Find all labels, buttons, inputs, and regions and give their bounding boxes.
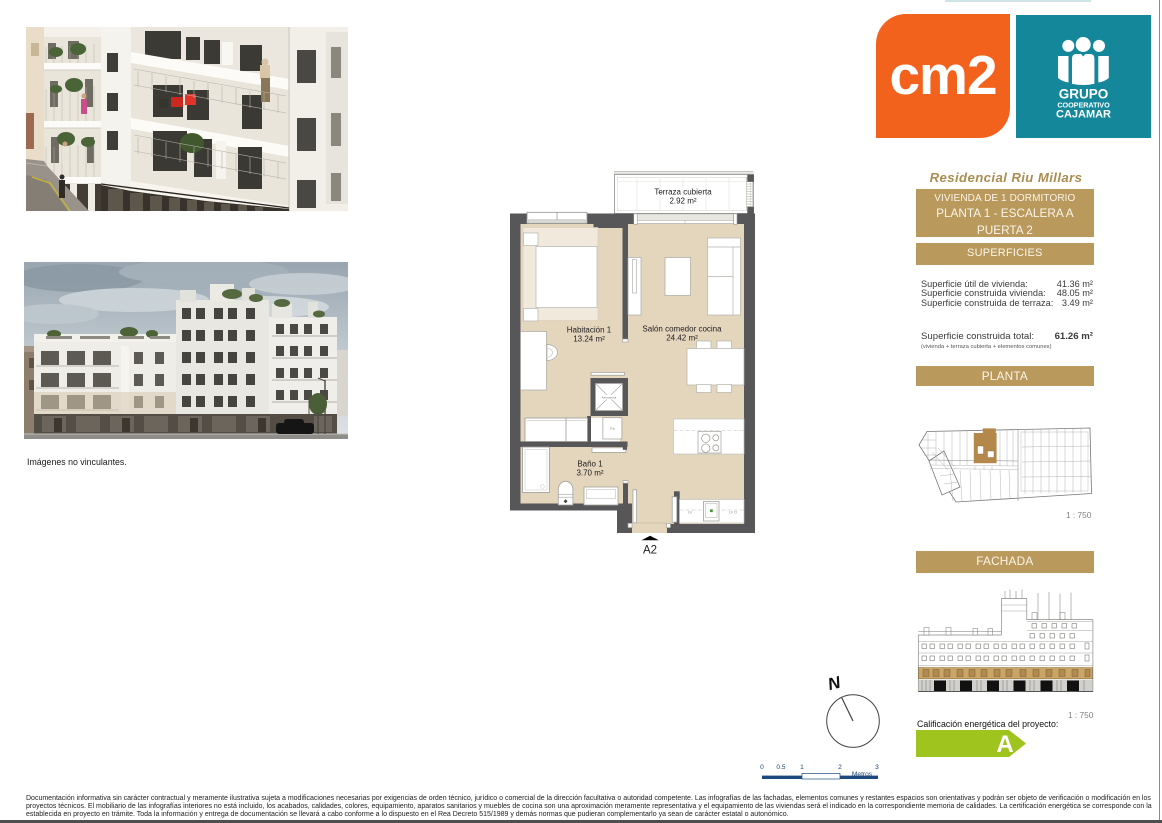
svg-text:Aerotermia: Aerotermia <box>602 395 617 399</box>
svg-text:0.5: 0.5 <box>776 764 785 771</box>
svg-text:24.42 m²: 24.42 m² <box>666 334 698 343</box>
svg-text:3.70 m²: 3.70 m² <box>576 469 603 478</box>
svg-text:2: 2 <box>838 764 842 771</box>
svg-text:2.92 m²: 2.92 m² <box>669 197 696 206</box>
svg-text:N: N <box>826 673 843 695</box>
svg-text:LV: LV <box>688 511 693 515</box>
svg-text:Habitación 1: Habitación 1 <box>567 325 612 334</box>
svg-text:Salón comedor cocina: Salón comedor cocina <box>642 324 722 333</box>
svg-text:0: 0 <box>760 764 764 771</box>
svg-text:13.24 m²: 13.24 m² <box>573 335 605 344</box>
svg-text:P.b: P.b <box>610 427 615 431</box>
svg-text:Baño 1: Baño 1 <box>577 459 603 468</box>
svg-text:1: 1 <box>800 764 804 771</box>
svg-text:LV O: LV O <box>729 511 737 515</box>
svg-text:Terraza cubierta: Terraza cubierta <box>654 187 712 196</box>
svg-text:3: 3 <box>875 764 879 771</box>
svg-text:A2: A2 <box>643 545 657 557</box>
